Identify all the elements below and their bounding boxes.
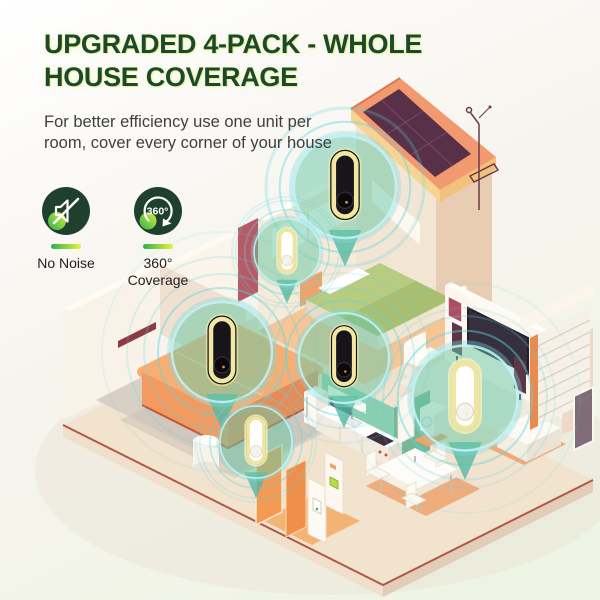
product-infographic: { "header": { "title_lines": ["UPGRADED … (0, 0, 600, 600)
device-pin-garage (144, 274, 300, 430)
device-pin-living-room (383, 316, 547, 480)
device-pin-hallway (236, 201, 339, 304)
house-illustration (0, 0, 600, 600)
device-pin-entry (200, 386, 312, 498)
